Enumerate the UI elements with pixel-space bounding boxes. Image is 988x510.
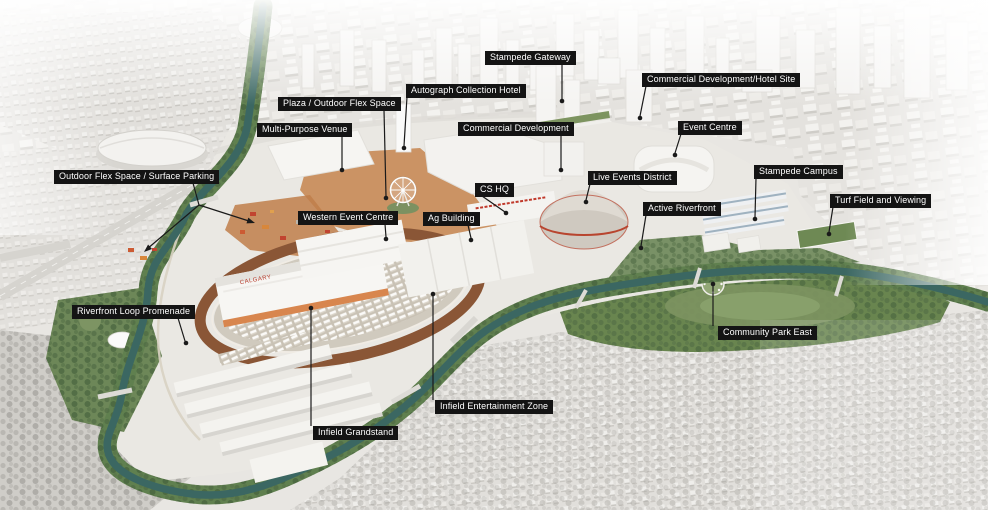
masterplan-figure: CALGARY STAMPEDE [0, 0, 988, 510]
hotel-tower [396, 104, 411, 152]
aerial-rendering: CALGARY STAMPEDE [0, 0, 988, 510]
commercial-development-building [544, 142, 584, 176]
